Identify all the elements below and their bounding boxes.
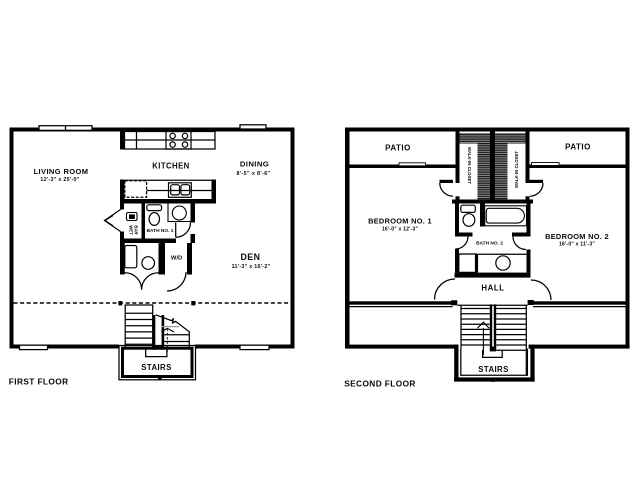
svg-text:BEDROOM NO. 2: BEDROOM NO. 2 [545, 232, 609, 241]
svg-text:DEN: DEN [240, 252, 260, 262]
svg-text:PATIO: PATIO [565, 143, 591, 152]
svg-text:16'-0" x 11'-3": 16'-0" x 11'-3" [559, 242, 595, 248]
svg-text:LIVING ROOM: LIVING ROOM [34, 167, 89, 176]
svg-text:HALL: HALL [481, 283, 504, 292]
svg-text:WALK-IN CLOSET: WALK-IN CLOSET [467, 147, 472, 184]
svg-text:FIRST FLOOR: FIRST FLOOR [9, 376, 69, 386]
svg-text:16'-0" x 12'-3": 16'-0" x 12'-3" [382, 226, 419, 232]
svg-text:8'-5" x 8'-6": 8'-5" x 8'-6" [237, 171, 271, 177]
svg-text:WET: WET [128, 225, 133, 235]
svg-text:12'-3" x 25'-0": 12'-3" x 25'-0" [40, 177, 79, 183]
svg-text:STAIRS: STAIRS [141, 363, 171, 372]
svg-text:WALK-IN CLOSET: WALK-IN CLOSET [514, 151, 519, 188]
svg-text:STAIRS: STAIRS [478, 365, 508, 374]
svg-text:BATH NO. 1: BATH NO. 1 [147, 228, 174, 234]
svg-text:BATH NO. 2: BATH NO. 2 [476, 240, 503, 246]
svg-text:BEDROOM NO. 1: BEDROOM NO. 1 [368, 217, 432, 226]
svg-text:DINING: DINING [240, 160, 269, 169]
svg-text:BAR: BAR [134, 225, 139, 235]
svg-text:SECOND FLOOR: SECOND FLOOR [344, 378, 416, 388]
svg-text:W/D: W/D [171, 256, 182, 262]
svg-text:PATIO: PATIO [385, 144, 411, 153]
svg-text:KITCHEN: KITCHEN [152, 161, 189, 170]
svg-text:11'-3" x 16'-2": 11'-3" x 16'-2" [232, 264, 271, 270]
